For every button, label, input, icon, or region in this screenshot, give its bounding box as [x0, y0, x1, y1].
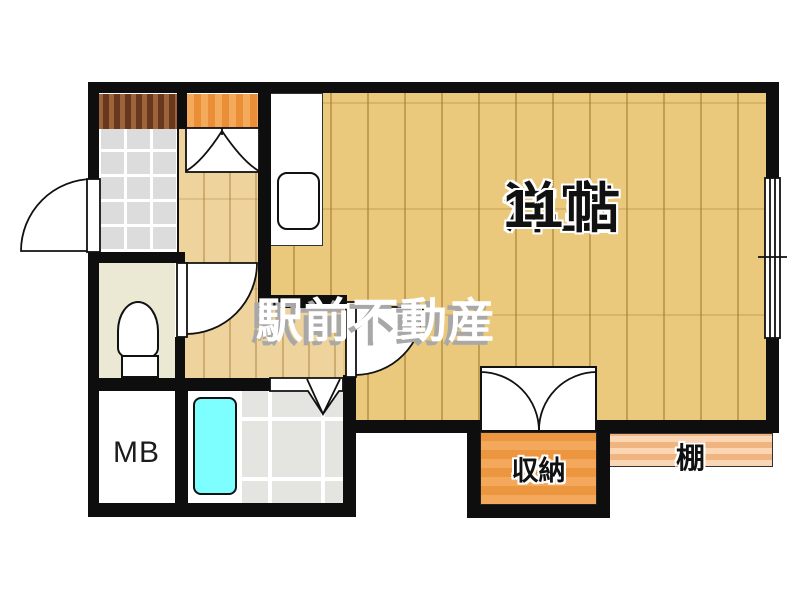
floor-plan: 洋室 11帖 駅前不動産 収納 棚 MB — [0, 0, 800, 600]
main-room-label-line2: 11帖 — [503, 180, 623, 238]
window — [765, 178, 780, 338]
watermark: 駅前不動産 — [256, 282, 496, 351]
meter-box-label: MB — [98, 436, 175, 470]
closet-door-arc-right — [539, 372, 597, 431]
entrance-door-leaf — [87, 179, 100, 252]
entrance-door-arc — [21, 179, 93, 251]
toilet-door-leaf — [177, 263, 187, 337]
toilet-door-arc — [186, 263, 257, 334]
closet-label: 収納 — [480, 449, 597, 488]
shelf-label: 棚 — [608, 435, 773, 477]
closet-door-arc-left — [480, 372, 539, 431]
